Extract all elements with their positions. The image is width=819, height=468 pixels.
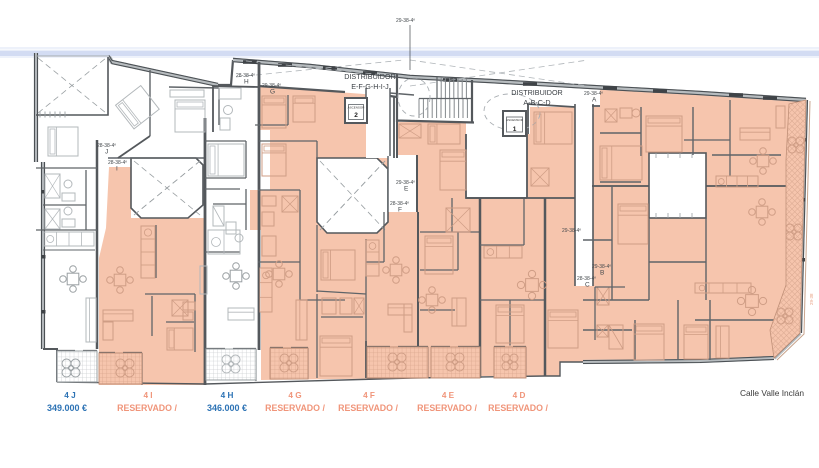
svg-text:B: B: [600, 270, 604, 277]
svg-text:4 D: 4 D: [513, 391, 526, 400]
svg-text:C: C: [585, 282, 590, 289]
svg-text:E: E: [404, 186, 409, 193]
svg-text:29-38-4º: 29-38-4º: [562, 228, 581, 234]
svg-text:A-B-C-D: A-B-C-D: [523, 98, 550, 107]
svg-text:4 I: 4 I: [143, 391, 152, 400]
svg-text:4 G: 4 G: [288, 391, 301, 400]
svg-text:4 F: 4 F: [363, 391, 375, 400]
svg-text:I: I: [116, 166, 118, 173]
svg-text:349.000 €: 349.000 €: [47, 403, 87, 413]
svg-text:E-F-G-H-I-J: E-F-G-H-I-J: [351, 82, 389, 91]
svg-text:J: J: [105, 149, 108, 156]
svg-text:RESERVADO /: RESERVADO /: [338, 403, 398, 413]
svg-text:F: F: [398, 207, 402, 214]
svg-text:2: 2: [354, 112, 358, 119]
svg-text:ASCENSOR: ASCENSOR: [348, 106, 366, 110]
svg-text:4 H: 4 H: [221, 391, 234, 400]
svg-text:4 J: 4 J: [64, 391, 75, 400]
svg-text:RESERVADO /: RESERVADO /: [488, 403, 548, 413]
svg-text:4 E: 4 E: [442, 391, 455, 400]
svg-text:29-38-4º: 29-38-4º: [396, 18, 415, 24]
svg-text:DISTRIBUIDOR: DISTRIBUIDOR: [344, 72, 396, 81]
svg-text:RESERVADO /: RESERVADO /: [417, 403, 477, 413]
svg-text:346.000 €: 346.000 €: [207, 403, 247, 413]
svg-text:ASCENSOR: ASCENSOR: [506, 118, 524, 122]
svg-text:G: G: [270, 89, 275, 96]
svg-text:RESERVADO /: RESERVADO /: [265, 403, 325, 413]
svg-text:1: 1: [513, 126, 517, 133]
svg-text:RESERVADO /: RESERVADO /: [117, 403, 177, 413]
svg-text:Calle Valle Inclán: Calle Valle Inclán: [740, 388, 804, 398]
svg-text:DISTRIBUIDOR: DISTRIBUIDOR: [511, 88, 563, 97]
svg-text:29-38: 29-38: [809, 293, 814, 305]
svg-text:A: A: [592, 97, 597, 104]
svg-text:H: H: [244, 79, 249, 86]
